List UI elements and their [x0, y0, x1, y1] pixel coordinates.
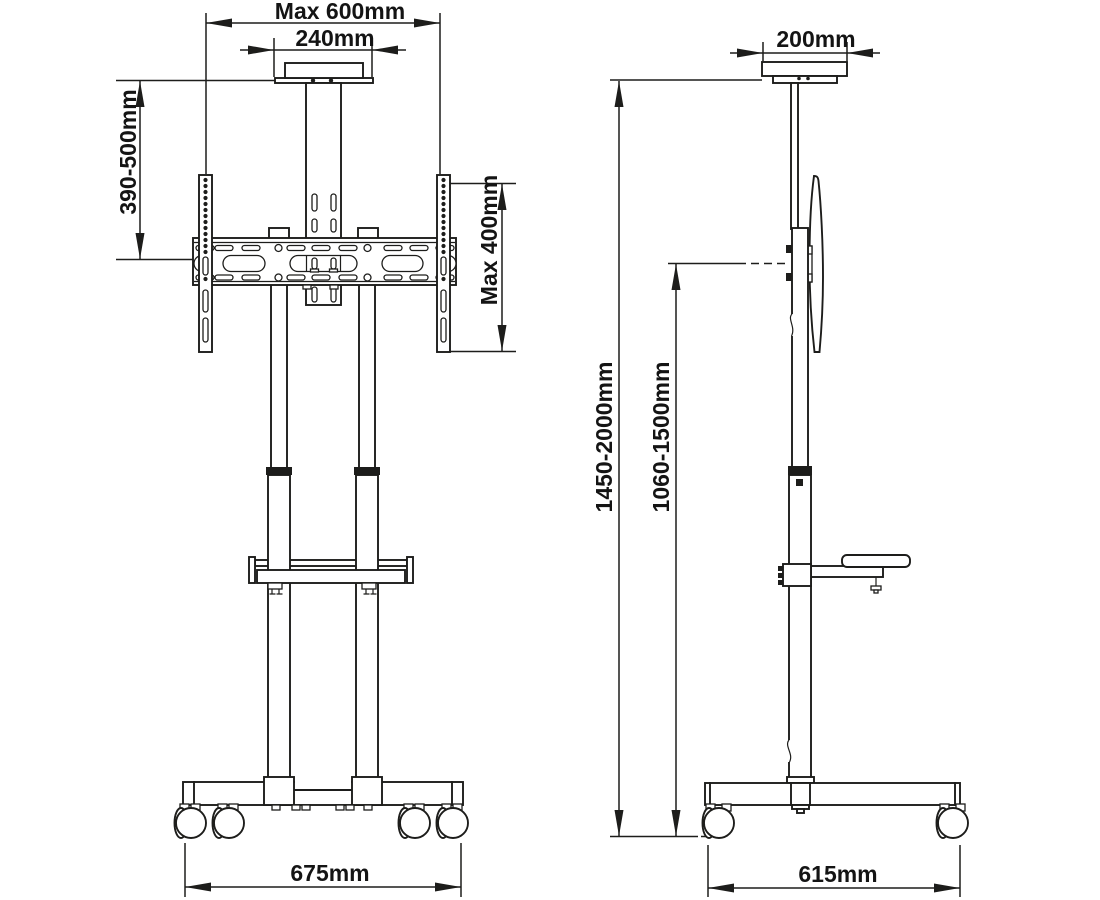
arrowhead: [934, 884, 960, 893]
dim-label-overall-height: 1450-2000mm: [591, 362, 617, 513]
dim-label-max-width: Max 600mm: [275, 0, 405, 24]
arrowhead: [206, 19, 232, 28]
caster-front-outer-right: [437, 804, 469, 838]
front-view: Max 600mm 240mm 390-500mm Max: [115, 0, 516, 897]
dimension-diagram: Max 600mm 240mm 390-500mm Max: [0, 0, 1100, 900]
dim-label-base-width: 675mm: [290, 860, 369, 886]
base-side: [705, 777, 960, 813]
dim-label-bracket-center-height: 1060-1500mm: [648, 362, 674, 513]
caster-side-left: [703, 804, 735, 838]
shelf-plate-side: [842, 555, 910, 567]
arrowhead: [372, 46, 398, 55]
arrowhead: [708, 884, 734, 893]
vesa-rail-right: [437, 175, 450, 352]
telescope-collar-left: [266, 467, 292, 475]
top-plate-front: [275, 63, 373, 83]
dim-label-base-depth: 615mm: [798, 861, 877, 887]
dim-mount-drop-range: 390-500mm: [115, 81, 276, 260]
caster-side-right: [937, 804, 969, 838]
caster-front-inner-left: [213, 804, 245, 838]
main-column-side: [786, 228, 812, 783]
vesa-rail-left: [199, 175, 212, 352]
arrowhead: [414, 19, 440, 28]
dim-label-top-plate-width: 240mm: [295, 25, 374, 51]
arrowhead: [737, 49, 763, 58]
dim-label-top-depth: 200mm: [776, 26, 855, 52]
arrowhead: [615, 81, 624, 107]
arrowhead: [136, 233, 145, 259]
caster-front-inner-right: [399, 804, 431, 838]
upper-column-side: [791, 83, 798, 229]
arrowhead: [498, 325, 507, 351]
arrowhead: [435, 883, 461, 892]
arrowhead: [248, 46, 274, 55]
arrowhead: [672, 264, 681, 290]
telescope-collar-right: [354, 467, 380, 475]
dim-bracket-center-height: 1060-1500mm: [648, 264, 789, 837]
upper-tube-left: [271, 283, 287, 469]
vesa-crossbar: [193, 238, 456, 289]
arrowhead: [672, 810, 681, 836]
upper-tube-right: [359, 283, 375, 469]
dim-label-vesa-max-height: Max 400mm: [476, 175, 502, 305]
caster-front-outer-left: [175, 804, 207, 838]
dim-label-mount-drop-range: 390-500mm: [115, 89, 141, 214]
dim-base-width: 675mm: [185, 843, 461, 897]
side-view: 200mm 1450-2000mm 1060-1500mm: [591, 26, 968, 897]
dim-base-depth: 615mm: [708, 845, 960, 897]
dim-top-depth: 200mm: [730, 26, 880, 61]
lower-tube-left: [268, 475, 290, 782]
arrowhead: [185, 883, 211, 892]
technical-drawing: Max 600mm 240mm 390-500mm Max: [0, 0, 1100, 900]
arrowhead: [615, 810, 624, 836]
top-plate-side: [762, 62, 847, 83]
lower-tube-right: [356, 475, 378, 782]
